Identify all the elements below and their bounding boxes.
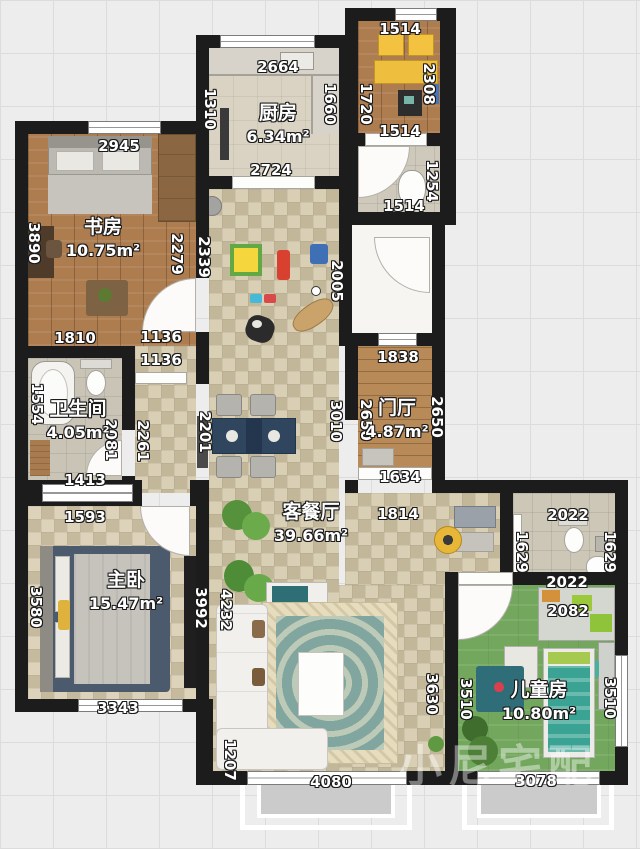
utility-cushion xyxy=(378,34,404,56)
bay-window-living xyxy=(257,784,395,818)
master-pillow xyxy=(55,622,70,678)
entry-bench xyxy=(454,506,496,528)
kids-desk xyxy=(598,642,615,710)
pet-dog-patch xyxy=(252,320,262,328)
wall xyxy=(196,493,209,699)
wall xyxy=(432,480,628,493)
window-living xyxy=(247,771,407,785)
utility-blue-item xyxy=(433,84,439,104)
study-pillow xyxy=(56,151,94,171)
window-foyer xyxy=(378,333,417,346)
wall xyxy=(345,212,456,225)
wall xyxy=(345,133,365,146)
wall xyxy=(513,572,628,585)
bathroom2-toilet xyxy=(564,527,584,553)
utility-sliding-door xyxy=(365,133,427,146)
kids-wardrobe-box xyxy=(542,590,560,602)
kitchen-sliding-door xyxy=(232,176,315,189)
wall xyxy=(440,8,456,225)
toilet-fixture xyxy=(398,170,426,206)
wall xyxy=(445,572,458,785)
study-plant xyxy=(98,288,112,302)
wall xyxy=(122,358,135,430)
wall xyxy=(427,133,456,146)
hall-sideboard xyxy=(197,416,208,468)
wall xyxy=(345,346,358,420)
kitchen-counter-right xyxy=(311,76,339,134)
master-blanket xyxy=(74,554,150,684)
wall xyxy=(196,35,209,134)
toy-ball xyxy=(311,286,321,296)
utility-bench xyxy=(374,60,438,84)
wall xyxy=(196,332,209,346)
toy-red xyxy=(277,250,290,280)
sofa-pillow xyxy=(252,668,265,686)
kids-door-band xyxy=(458,572,513,585)
bay-window-kids xyxy=(477,784,601,818)
kids-plant xyxy=(468,736,498,766)
dining-chair xyxy=(250,394,276,416)
kids-wardrobe-box xyxy=(572,595,592,611)
window-utility xyxy=(395,8,437,21)
window-kitchen xyxy=(220,35,315,48)
bathroom-toilet-tank xyxy=(80,359,112,369)
bathroom2-shower-door xyxy=(513,514,522,578)
sofa-chaise xyxy=(216,728,328,770)
study-wardrobe xyxy=(158,134,196,222)
entry-door xyxy=(358,467,432,480)
utility-cushion xyxy=(408,34,434,56)
dining-chair xyxy=(250,456,276,478)
study-chair xyxy=(46,240,62,258)
yellow-stool xyxy=(434,526,462,554)
toy-playmat xyxy=(230,244,262,276)
dining-chair xyxy=(216,456,242,478)
toy-blue xyxy=(310,244,328,264)
kitchen-cabinet-strip xyxy=(220,108,229,160)
dining-table-runner xyxy=(246,418,262,454)
master-yellow-cushion xyxy=(58,600,70,630)
kids-pillow xyxy=(548,652,590,664)
sofa-pillow xyxy=(252,620,265,638)
plant xyxy=(242,512,270,540)
window-master-bottom xyxy=(78,699,183,712)
bathroom2-cabinet xyxy=(595,536,613,552)
foyer-mat xyxy=(362,448,394,466)
master-tv-cabinet xyxy=(184,556,196,688)
study-bed-headboard xyxy=(48,136,152,148)
bathroom-toilet xyxy=(86,370,106,396)
dining-plate xyxy=(268,430,280,442)
coffee-table xyxy=(298,652,344,716)
window-kids-right xyxy=(615,655,628,747)
dining-chair xyxy=(216,394,242,416)
small-plant xyxy=(428,736,444,752)
dining-plate xyxy=(226,430,238,442)
kitchen-sink xyxy=(280,52,314,70)
wall xyxy=(196,346,209,384)
washing-machine-door xyxy=(404,96,414,104)
window-master-top xyxy=(42,484,133,502)
window-study xyxy=(88,121,161,134)
toy-small xyxy=(250,294,262,303)
wall xyxy=(196,134,209,278)
wall xyxy=(432,225,445,493)
master-bed-headboard xyxy=(40,546,53,692)
corridor-pocket-door xyxy=(135,372,187,384)
wall xyxy=(196,699,213,785)
corridor-floor xyxy=(135,346,196,493)
kids-wardrobe-box xyxy=(590,614,612,632)
window-kids-bottom xyxy=(477,771,600,785)
toy-small xyxy=(264,294,276,303)
bathtub-basin xyxy=(38,369,68,417)
floor-plan: 2945266415141310166017202308272415141254… xyxy=(0,0,640,849)
bathroom-mat xyxy=(30,440,50,476)
wall xyxy=(15,346,135,358)
kids-blanket xyxy=(548,666,590,752)
study-blanket xyxy=(48,174,152,214)
wall xyxy=(15,121,28,712)
wall xyxy=(345,480,358,493)
kitchen-counter-top xyxy=(209,48,339,76)
bathroom2-toilet-tank xyxy=(558,516,588,526)
kids-rug-heart xyxy=(494,682,504,692)
wall xyxy=(345,8,358,225)
study-pillow xyxy=(102,151,140,171)
